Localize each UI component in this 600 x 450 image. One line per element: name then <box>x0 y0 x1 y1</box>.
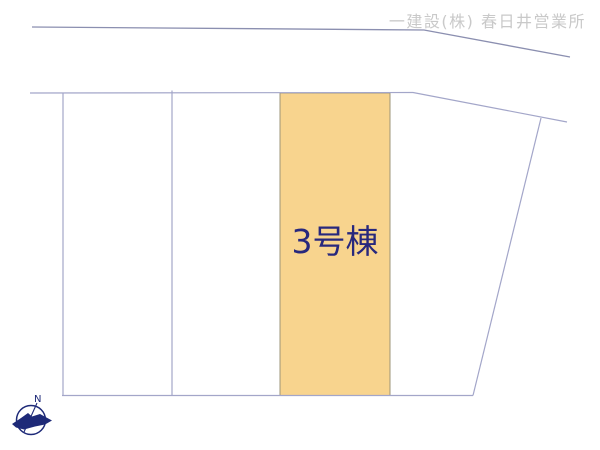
compass-north-icon: N <box>12 394 52 435</box>
lot-right-boundary-line <box>473 118 541 396</box>
compass-n-letter: N <box>34 394 41 405</box>
company-watermark: 一建設(株) 春日井営業所 <box>389 8 586 32</box>
lot-3-label: 3号棟 <box>280 224 390 260</box>
site-plan-page: N 一建設(株) 春日井営業所 3号棟 <box>0 0 600 450</box>
